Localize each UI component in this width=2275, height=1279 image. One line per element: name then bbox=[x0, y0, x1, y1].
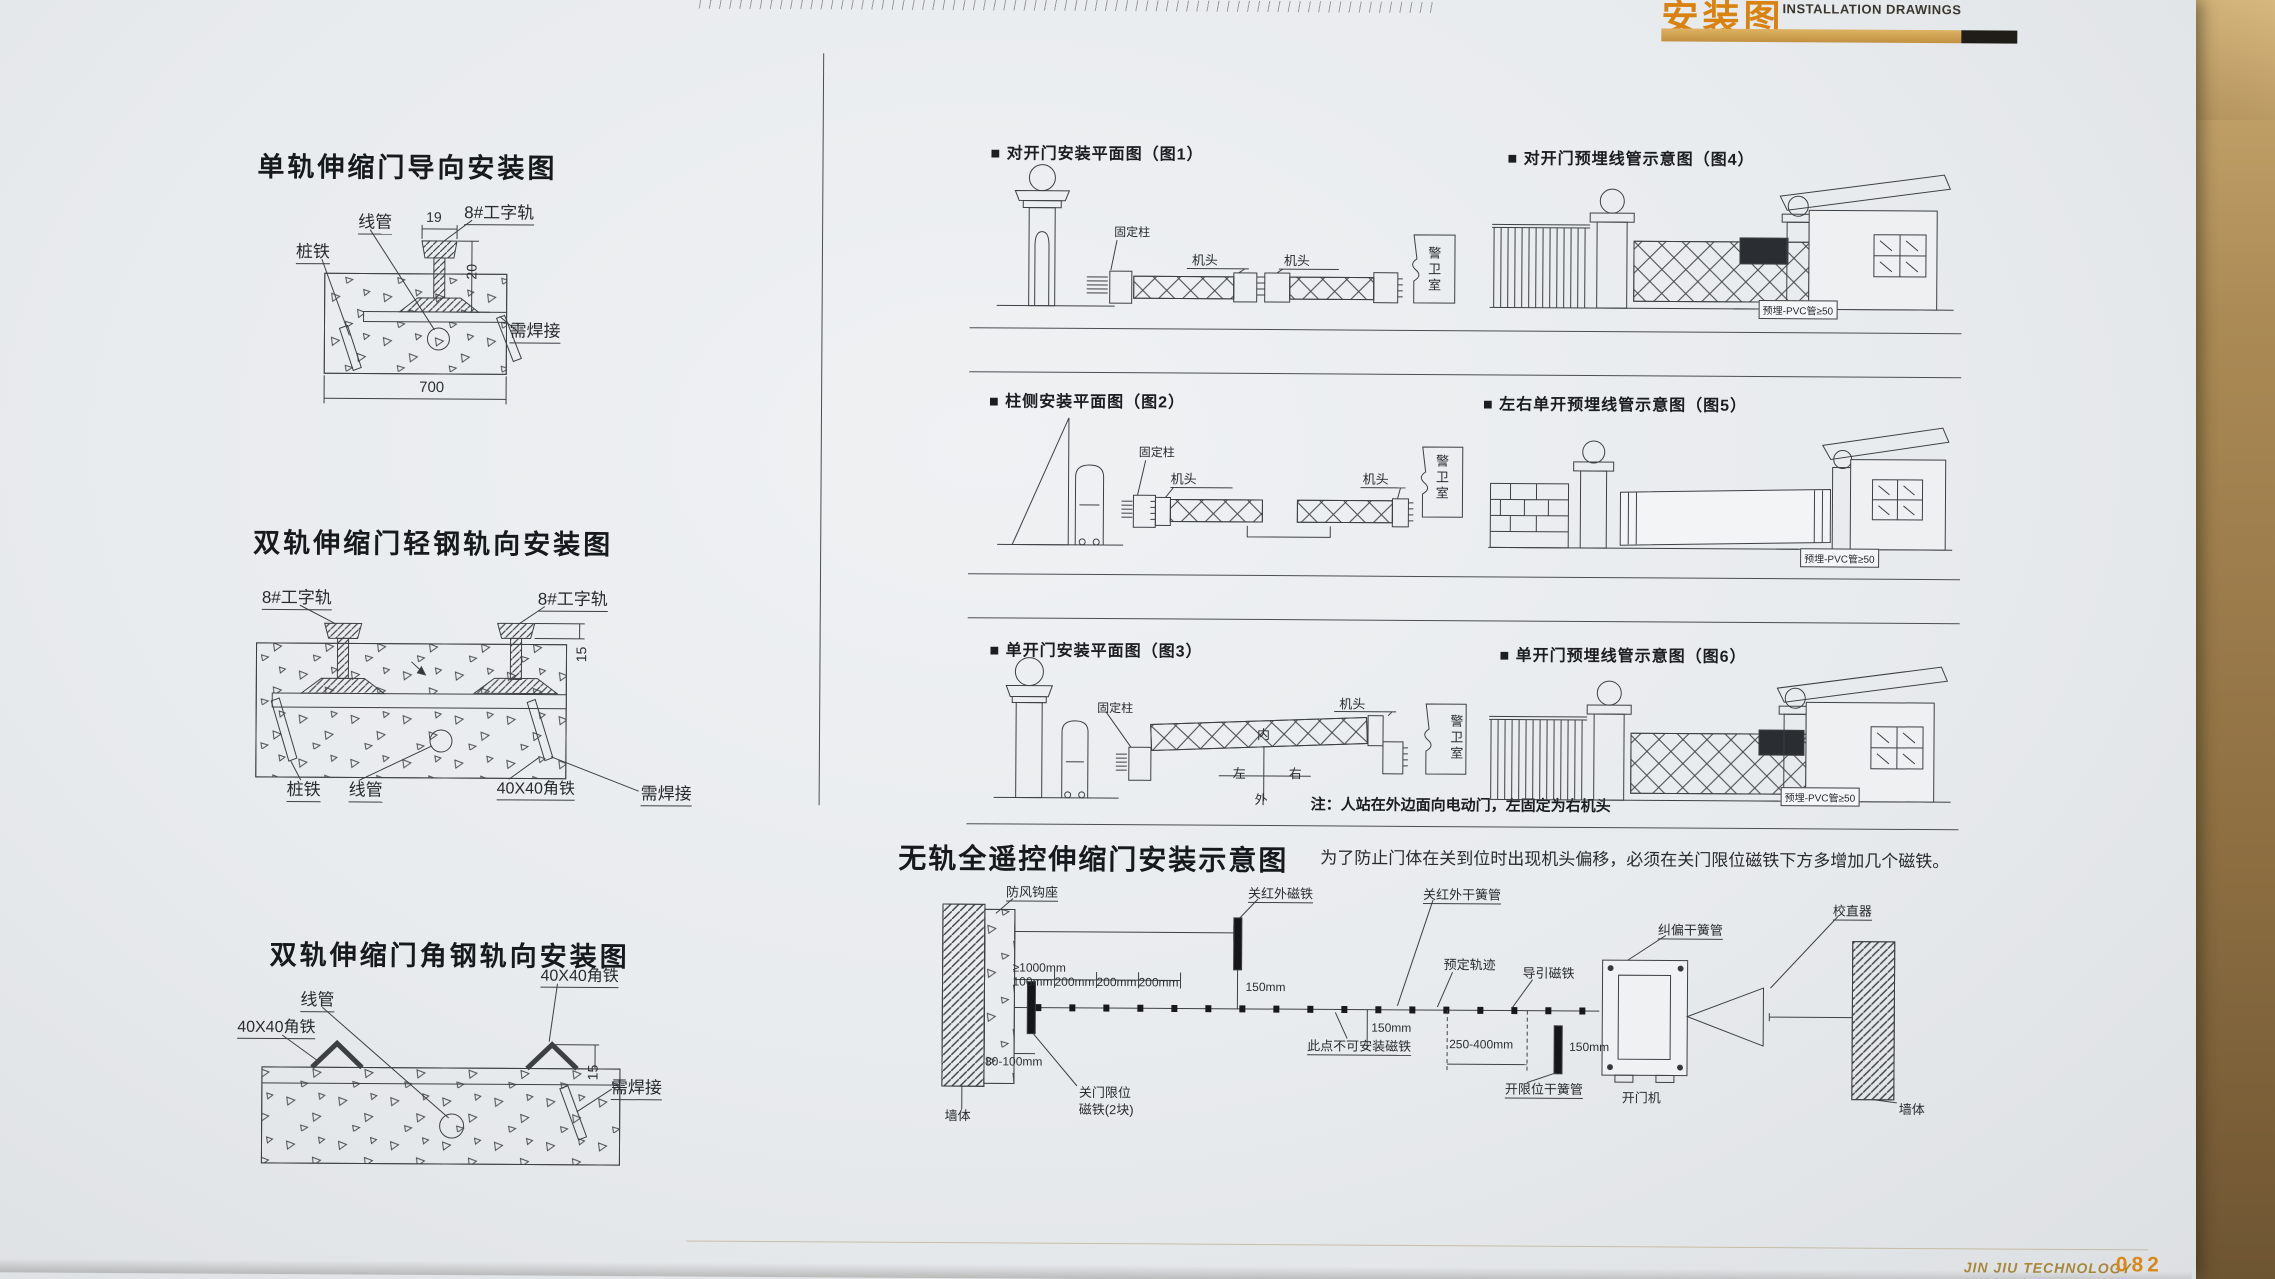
d1-dim-19: 19 bbox=[426, 210, 442, 225]
header-gold-bar bbox=[1661, 28, 1961, 43]
tg-dim-200a: 200mm bbox=[1054, 976, 1094, 989]
d2-stake-label: 桩铁 bbox=[287, 781, 321, 802]
plan1-drawing bbox=[987, 157, 1468, 330]
plan1-fixed-post-label: 固定柱 bbox=[1114, 226, 1150, 239]
row-separator bbox=[969, 371, 1961, 378]
header-hatch-decoration bbox=[691, 0, 1436, 13]
plan1-head-label-b: 机头 bbox=[1284, 254, 1310, 268]
d2-dim-15: 15 bbox=[574, 647, 589, 663]
tg-straightener-label: 校直器 bbox=[1833, 904, 1872, 921]
plan2-head-label-b: 机头 bbox=[1363, 473, 1389, 487]
footer-rule bbox=[686, 1240, 2148, 1250]
tg-dim-200c: 200mm bbox=[1138, 976, 1178, 989]
d3-weld-label: 需焊接 bbox=[611, 1079, 662, 1100]
elev4-pvc-label: 预埋-PVC管≥50 bbox=[1759, 300, 1838, 319]
plan2-head-label-a: 机头 bbox=[1171, 472, 1197, 486]
tg-close-limit-label-1: 关门限位 bbox=[1079, 1086, 1131, 1101]
column-divider bbox=[819, 53, 825, 805]
page-content: 安装图 INSTALLATION DRAWINGS 单轨伸缩门导向安装图 线管 … bbox=[0, 0, 2196, 1279]
plan2-fixed-post-label: 固定柱 bbox=[1139, 446, 1175, 459]
plan1-guard-room-label: 警卫室 bbox=[1426, 246, 1441, 308]
tg-dim-150b: 150mm bbox=[1371, 1022, 1411, 1035]
tg-open-limit-reed-label: 开限位干簧管 bbox=[1505, 1082, 1583, 1099]
tg-wall-left-label: 墙体 bbox=[945, 1109, 971, 1123]
d2-conduit-label: 线管 bbox=[349, 781, 383, 802]
elev6-drawing bbox=[1478, 654, 1959, 825]
plan2-drawing bbox=[985, 404, 1466, 579]
d3-angle-left-label: 40X40角铁 bbox=[237, 1019, 315, 1039]
d2-rail-left-label: 8#工字轨 bbox=[262, 589, 332, 610]
tg-no-magnet-label: 此点不可安装磁铁 bbox=[1307, 1039, 1411, 1056]
trackless-note: 为了防止门体在关到位时出现机头偏移，必须在关门限位磁铁下方多增加几个磁铁。 bbox=[1320, 849, 1949, 872]
tg-close-ir-reed-label: 关红外干簧管 bbox=[1423, 888, 1501, 905]
plan3-compass-left: 左 bbox=[1233, 767, 1246, 781]
footer-page-number: 082 bbox=[2116, 1253, 2163, 1277]
tg-deviation-reed-label: 纠偏干簧管 bbox=[1658, 923, 1723, 940]
elev5-drawing bbox=[1480, 407, 1961, 578]
diagram3-drawing bbox=[226, 955, 707, 1183]
d1-dim-20: 20 bbox=[464, 264, 479, 280]
d3-angle-right-label: 40X40角铁 bbox=[540, 968, 618, 988]
tg-dim-200b: 200mm bbox=[1096, 976, 1136, 989]
photo-of-catalog-page: { "photo": { "header_cn": "安装图", "header… bbox=[0, 0, 2275, 1279]
tg-close-ir-magnet-label: 关红外磁铁 bbox=[1248, 887, 1313, 904]
elev5-pvc-label: 预埋-PVC管≥50 bbox=[1800, 548, 1879, 567]
tg-wind-hook-label: 防风钩座 bbox=[1006, 885, 1058, 902]
header-gold-bar-end bbox=[1961, 30, 2017, 43]
plan3-fixed-post-label: 固定柱 bbox=[1097, 702, 1133, 715]
table-surface bbox=[2185, 0, 2275, 120]
d1-weld-label: 需焊接 bbox=[509, 322, 560, 343]
tg-dim-ge1000: ≥1000mm bbox=[1013, 961, 1066, 975]
tg-guide-magnet-label: 导引磁铁 bbox=[1523, 967, 1575, 982]
elev4-drawing bbox=[1482, 160, 1963, 328]
tg-wall-right-label: 墙体 bbox=[1899, 1103, 1925, 1117]
plan3-compass-outer: 外 bbox=[1255, 793, 1268, 807]
plan1-head-label-a: 机头 bbox=[1192, 254, 1218, 268]
page-header-title-en: INSTALLATION DRAWINGS bbox=[1782, 1, 1961, 17]
d1-dim-700: 700 bbox=[419, 380, 444, 397]
d1-stake-label: 桩铁 bbox=[296, 243, 330, 264]
row-separator bbox=[968, 617, 1960, 624]
plan3-compass-right: 右 bbox=[1289, 767, 1302, 781]
d2-rail-right-label: 8#工字轨 bbox=[538, 591, 608, 612]
d1-rail-label: 8#工字轨 bbox=[464, 204, 534, 225]
plan3-head-label: 机头 bbox=[1339, 697, 1365, 711]
tg-dim-150c: 150mm bbox=[1569, 1041, 1609, 1054]
diagram2-title: 双轨伸缩门轻钢轨向安装图 bbox=[253, 521, 613, 562]
footer-brand: JIN JIU TECHNOLOGY bbox=[1964, 1259, 2132, 1276]
plan3-compass-inner: 内 bbox=[1257, 728, 1270, 742]
d2-angle-label: 40X40角铁 bbox=[497, 780, 575, 800]
d3-conduit-label: 线管 bbox=[300, 991, 334, 1012]
plan3-guard-room-label: 警卫室 bbox=[1448, 714, 1463, 778]
tg-dim-150a: 150mm bbox=[1245, 981, 1285, 994]
tg-track-label: 预定轨迹 bbox=[1444, 958, 1496, 973]
tg-dim-100: 100mm bbox=[1012, 975, 1052, 988]
elev6-pvc-label: 预埋-PVC管≥50 bbox=[1781, 787, 1860, 806]
d3-dim-15: 15 bbox=[586, 1065, 601, 1081]
d2-weld-label: 需焊接 bbox=[641, 785, 692, 806]
tg-dim-80-100: 80-100mm bbox=[985, 1055, 1042, 1069]
plan2-guard-room-label: 警卫室 bbox=[1433, 454, 1448, 518]
catalog-page: 安装图 INSTALLATION DRAWINGS 单轨伸缩门导向安装图 线管 … bbox=[0, 0, 2196, 1279]
tg-close-limit-label-2: 磁铁(2块) bbox=[1079, 1103, 1134, 1118]
trackless-drawing bbox=[926, 871, 1978, 1177]
d1-conduit-label: 线管 bbox=[358, 213, 392, 234]
diagram1-title: 单轨伸缩门导向安装图 bbox=[257, 145, 557, 186]
tg-opener-label: 开门机 bbox=[1622, 1091, 1661, 1106]
tg-dim-250-400: 250-400mm bbox=[1449, 1038, 1513, 1052]
